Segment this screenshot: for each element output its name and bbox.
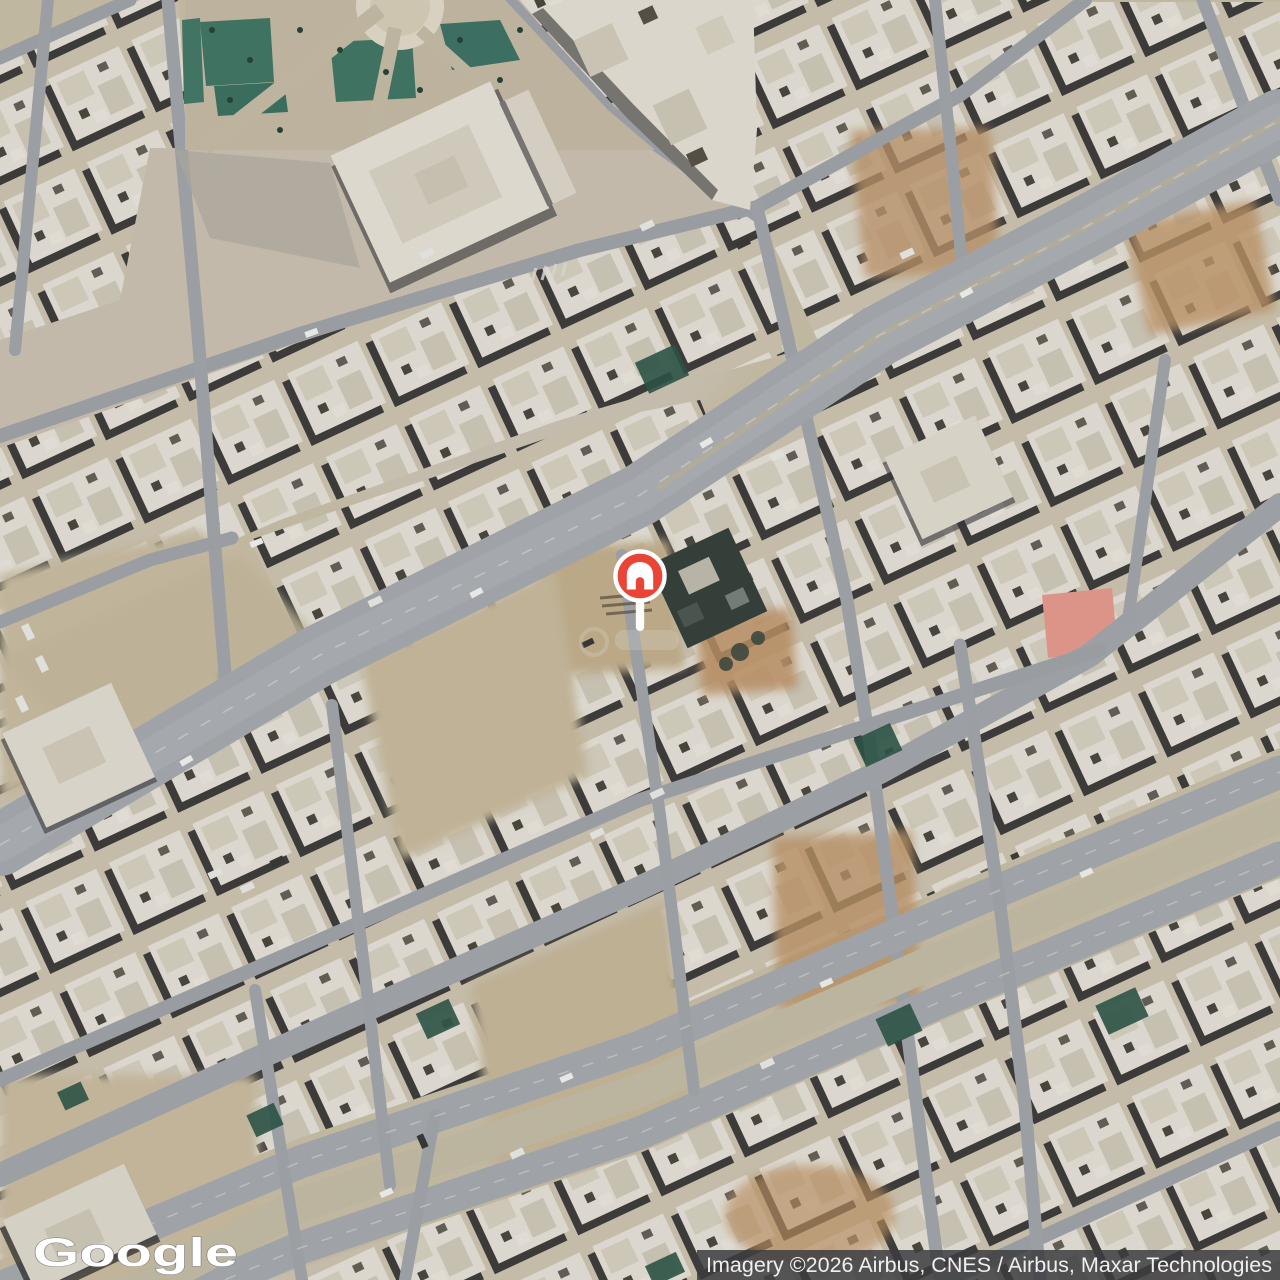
svg-text:Imagery ©2026 Airbus, CNES / A: Imagery ©2026 Airbus, CNES / Airbus, Max… [706,1254,1272,1277]
svg-text:Google: Google [33,1231,238,1275]
